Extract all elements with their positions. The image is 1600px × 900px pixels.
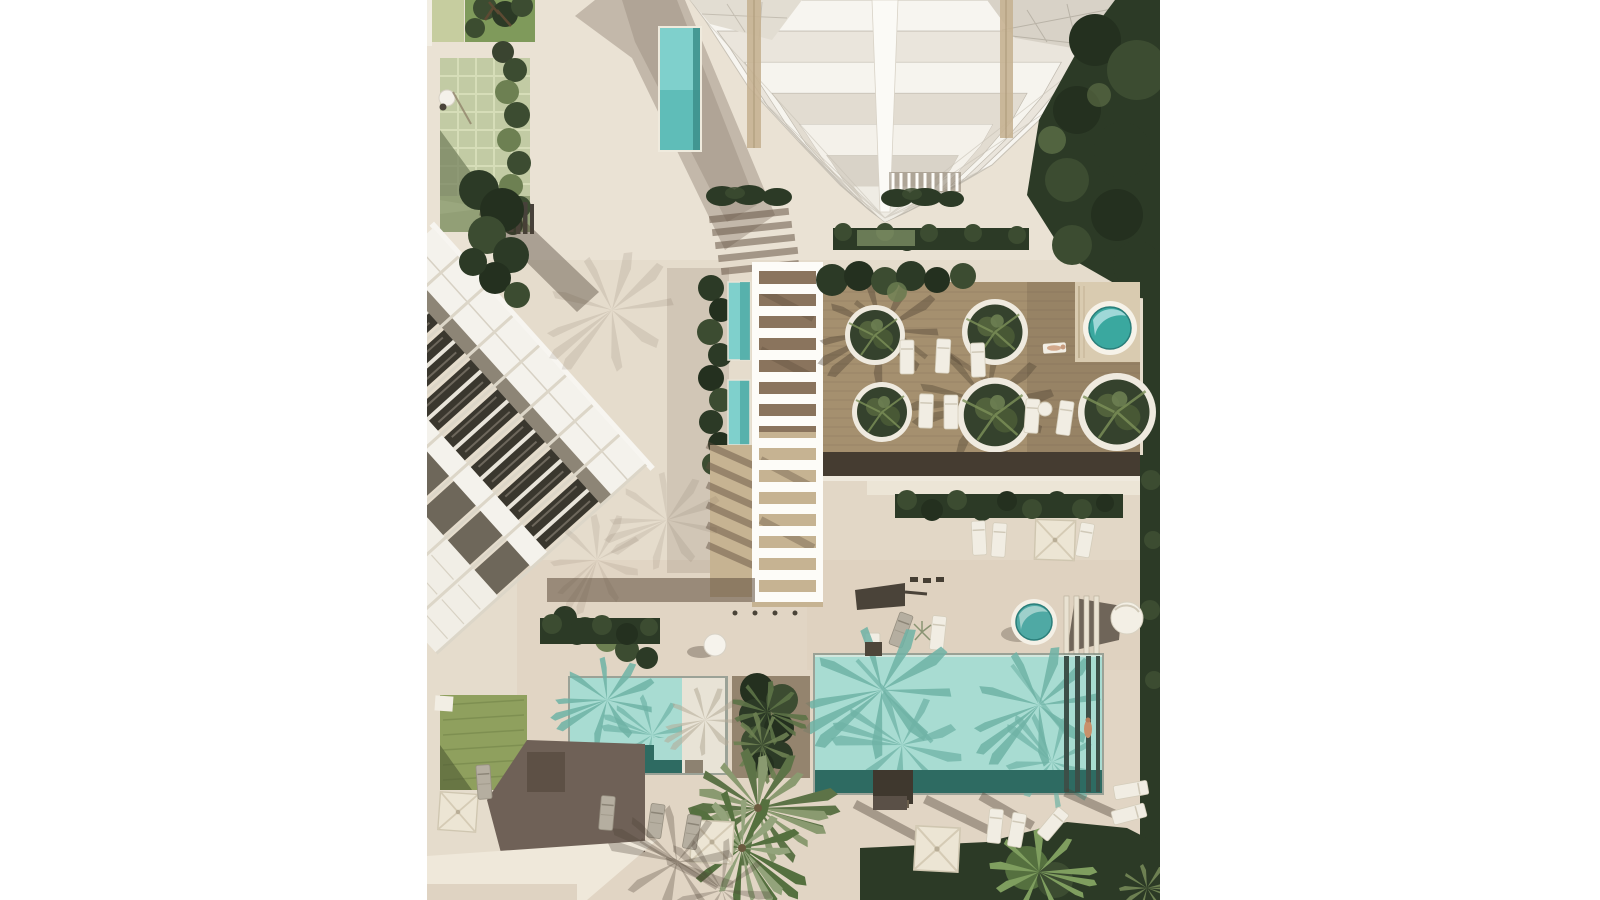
terrace-hedge — [895, 490, 1123, 521]
sun-lounger — [918, 394, 933, 428]
gray-lounger — [476, 765, 492, 800]
gray-lounger — [599, 795, 616, 830]
sun-lounger — [970, 343, 985, 377]
wood-path — [706, 442, 756, 597]
square-parasol — [914, 826, 960, 872]
round-planter — [845, 305, 905, 365]
round-planter — [852, 382, 912, 442]
pool-deep-edge — [815, 770, 1102, 793]
sun-lounger — [935, 339, 951, 374]
round-planter — [958, 378, 1033, 453]
round-planter — [1078, 373, 1156, 451]
sun-lounger — [971, 521, 987, 556]
side-table — [1038, 402, 1052, 416]
render-canvas — [0, 0, 1600, 900]
cropped-parasol — [434, 695, 453, 711]
aerial-render — [427, 0, 1160, 900]
plunge-pool-platform — [1075, 282, 1140, 362]
sun-lounger — [929, 615, 946, 650]
deck-edge-shadow — [823, 452, 1140, 476]
boardwalk-bridge — [752, 262, 823, 607]
sun-lounger — [991, 523, 1007, 558]
lower-hedge — [540, 614, 660, 645]
lawn-strip — [430, 0, 464, 42]
square-parasol — [438, 792, 478, 832]
wood-deck — [794, 255, 1156, 466]
sun-lounger — [900, 340, 914, 374]
sun-lounger — [944, 395, 958, 429]
round-ball-table — [704, 634, 726, 656]
parasol-base — [440, 104, 447, 111]
lap-pool — [658, 26, 702, 152]
shelf-step — [685, 760, 703, 773]
deck-edge-coping — [823, 476, 1140, 481]
sun-lounger — [1024, 399, 1040, 434]
pool-ladder — [865, 642, 882, 656]
square-parasol — [1034, 519, 1075, 560]
sunbather — [1043, 342, 1067, 354]
dark-mat — [873, 796, 907, 810]
sun-lounger — [986, 808, 1003, 843]
